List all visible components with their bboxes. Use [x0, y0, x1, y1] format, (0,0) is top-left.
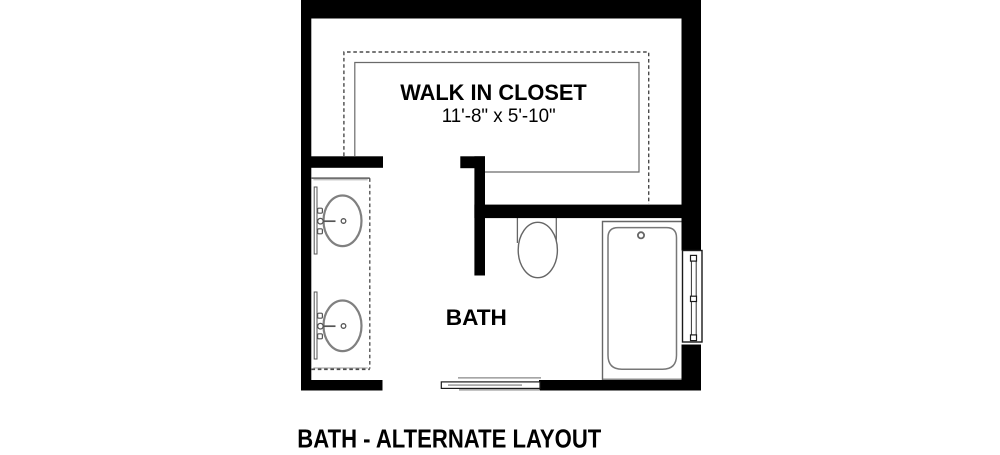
svg-text:BATH: BATH [446, 305, 507, 330]
svg-text:WALK IN CLOSET: WALK IN CLOSET [400, 80, 587, 105]
svg-text:11'-8" x 5'-10": 11'-8" x 5'-10" [442, 105, 556, 127]
svg-text:BATH - ALTERNATE LAYOUT: BATH - ALTERNATE LAYOUT [297, 423, 601, 453]
